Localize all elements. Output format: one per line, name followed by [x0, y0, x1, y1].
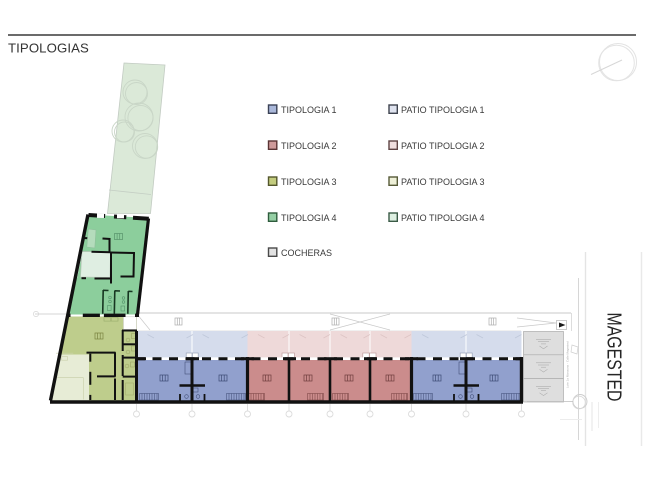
svg-text:TIPOLOGIA 2: TIPOLOGIA 2 — [281, 141, 337, 151]
svg-text:TIPOLOGIA 4: TIPOLOGIA 4 — [281, 213, 337, 223]
svg-text:PATIO TIPOLOGIA 4: PATIO TIPOLOGIA 4 — [401, 213, 485, 223]
svg-text:PATIO TIPOLOGIA 1: PATIO TIPOLOGIA 1 — [401, 105, 485, 115]
svg-text:Lote 1a Manzana - Calle Mage: Lote 1a Manzana - Calle Magested — [566, 341, 570, 388]
svg-text:TIPOLOGIA 3: TIPOLOGIA 3 — [281, 177, 337, 187]
svg-text:TIPOLOGIAS: TIPOLOGIAS — [8, 41, 89, 56]
svg-text:PATIO TIPOLOGIA 3: PATIO TIPOLOGIA 3 — [401, 177, 485, 187]
svg-text:COCHERAS: COCHERAS — [281, 248, 332, 258]
svg-text:TIPOLOGIA 1: TIPOLOGIA 1 — [281, 105, 337, 115]
svg-text:PATIO TIPOLOGIA 2: PATIO TIPOLOGIA 2 — [401, 141, 485, 151]
svg-text:MAGESTED: MAGESTED — [603, 313, 626, 402]
